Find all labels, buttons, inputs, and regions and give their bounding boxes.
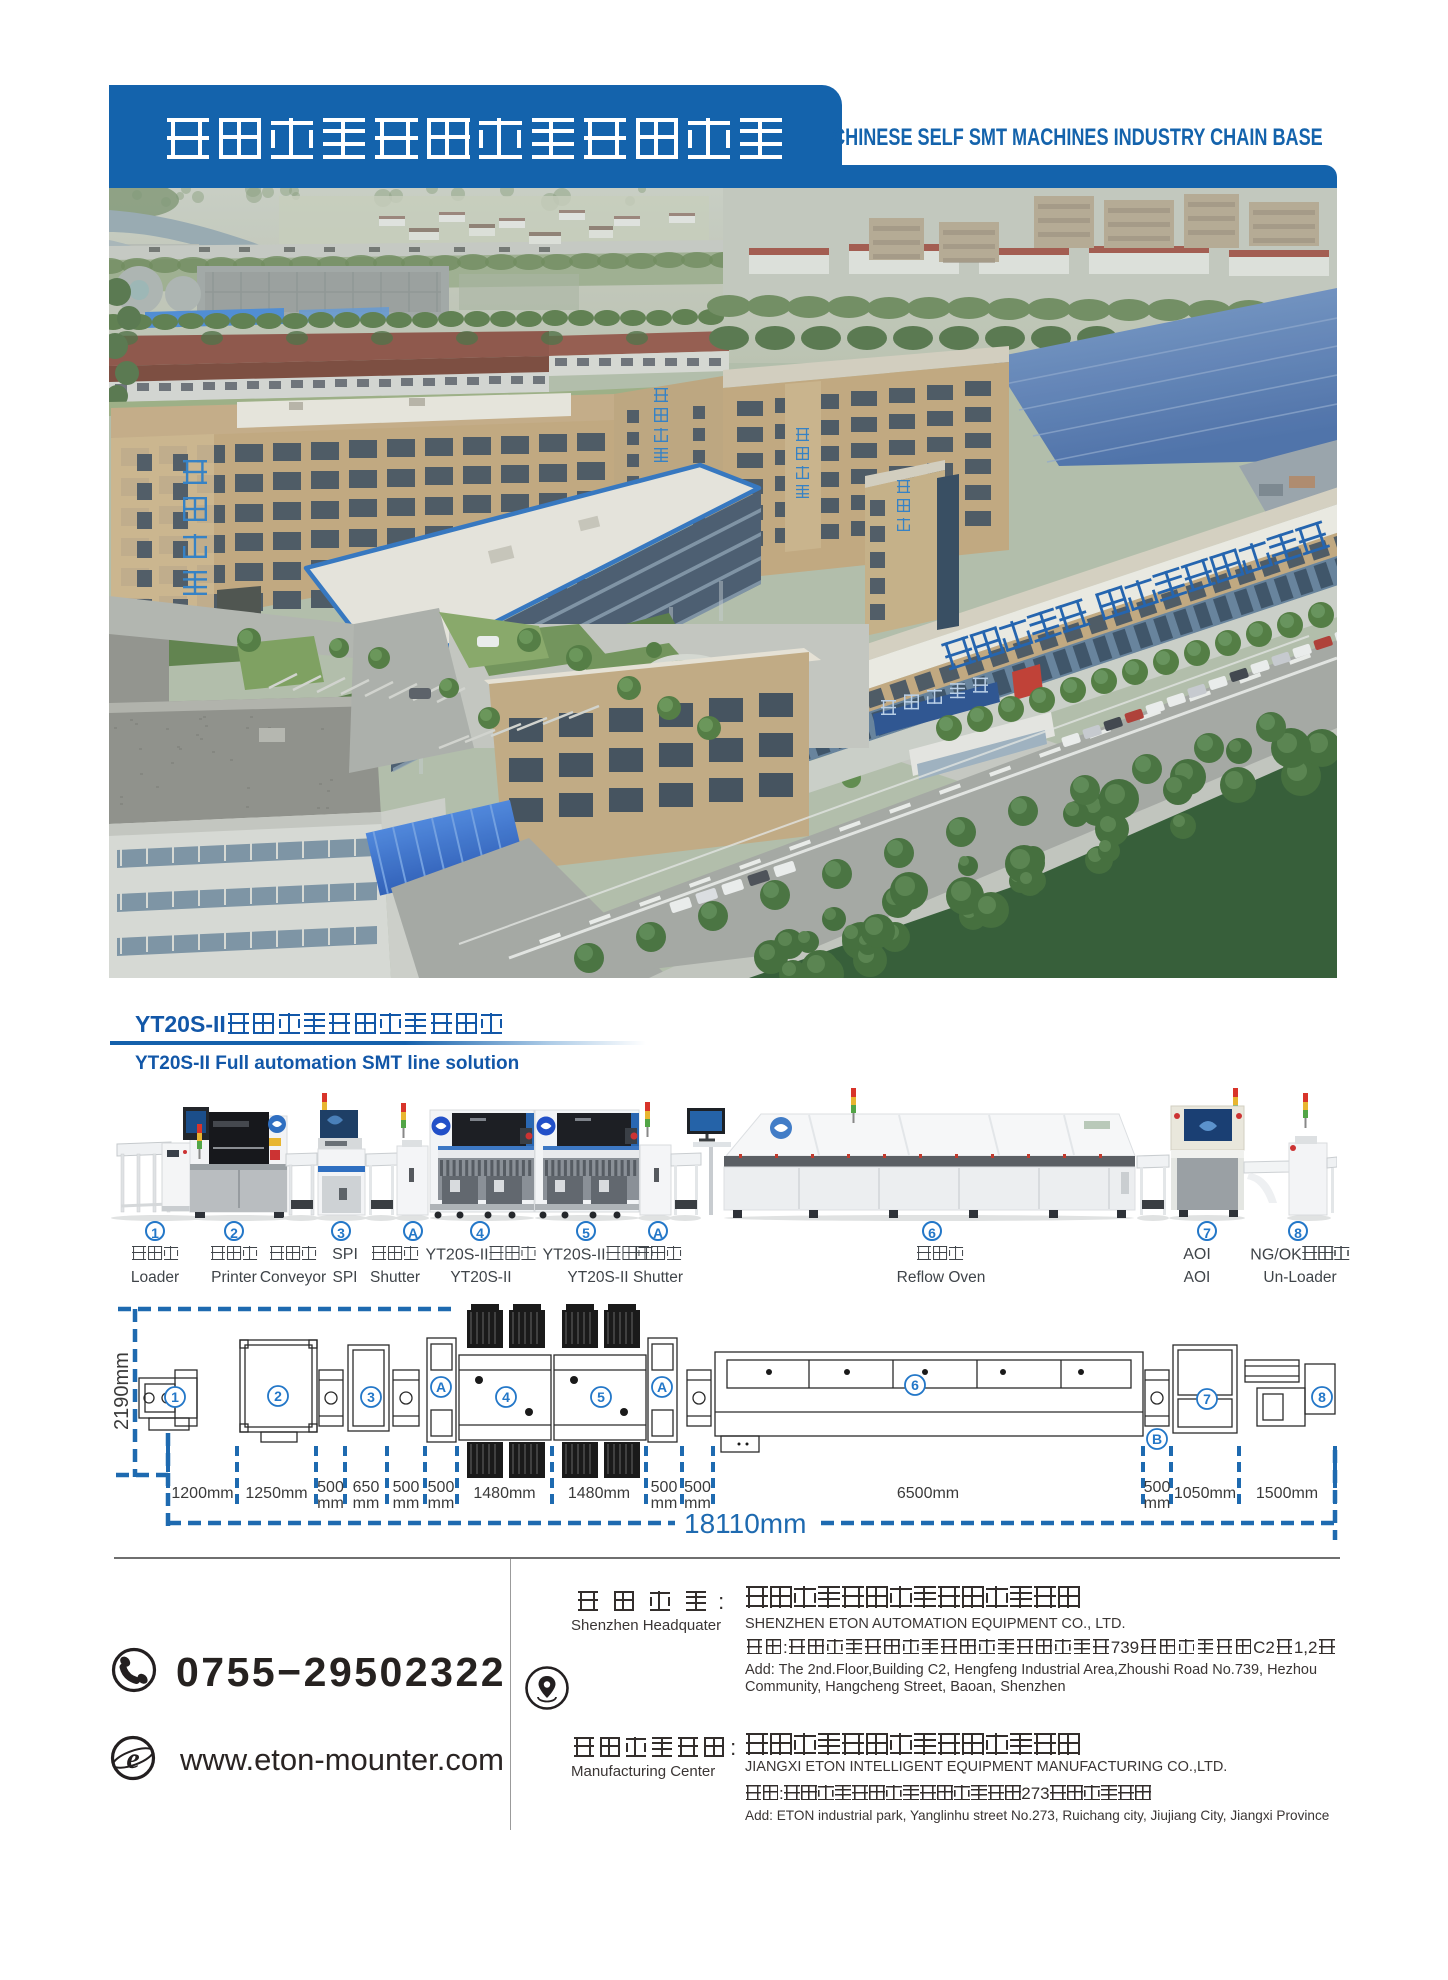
svg-text:6500mm: 6500mm: [897, 1485, 959, 1502]
svg-text:4: 4: [502, 1389, 510, 1405]
svg-text:2190mm: 2190mm: [111, 1352, 133, 1430]
svg-text:1200mm: 1200mm: [171, 1485, 233, 1502]
svg-text:500: 500: [684, 1479, 711, 1496]
svg-text:1500mm: 1500mm: [1256, 1485, 1318, 1502]
svg-text:A: A: [657, 1379, 667, 1395]
svg-text:mm: mm: [428, 1495, 455, 1512]
svg-text:e: e: [126, 1742, 139, 1775]
svg-text:500: 500: [1144, 1479, 1171, 1496]
svg-text:6: 6: [911, 1377, 919, 1393]
svg-text:mm: mm: [651, 1495, 678, 1512]
svg-text:18110mm: 18110mm: [684, 1508, 806, 1539]
svg-text:5: 5: [597, 1389, 605, 1405]
svg-text:mm: mm: [353, 1495, 380, 1512]
svg-text:1250mm: 1250mm: [245, 1485, 307, 1502]
svg-text:650: 650: [353, 1479, 380, 1496]
svg-text:500: 500: [428, 1479, 455, 1496]
svg-text:3: 3: [367, 1389, 375, 1405]
svg-text:mm: mm: [317, 1495, 344, 1512]
svg-text:500: 500: [317, 1479, 344, 1496]
svg-text:mm: mm: [393, 1495, 420, 1512]
svg-text:A: A: [436, 1379, 446, 1395]
svg-text:1050mm: 1050mm: [1174, 1485, 1236, 1502]
svg-text:mm: mm: [1144, 1495, 1171, 1512]
svg-text:1: 1: [171, 1389, 179, 1405]
svg-text:500: 500: [393, 1479, 420, 1496]
svg-text:1480mm: 1480mm: [568, 1485, 630, 1502]
svg-text:8: 8: [1318, 1389, 1326, 1405]
svg-text:B: B: [1152, 1431, 1162, 1447]
svg-text:1480mm: 1480mm: [473, 1485, 535, 1502]
svg-text:2: 2: [274, 1388, 282, 1404]
svg-text:mm: mm: [684, 1495, 711, 1512]
svg-text:500: 500: [651, 1479, 678, 1496]
svg-text:7: 7: [1203, 1391, 1211, 1407]
